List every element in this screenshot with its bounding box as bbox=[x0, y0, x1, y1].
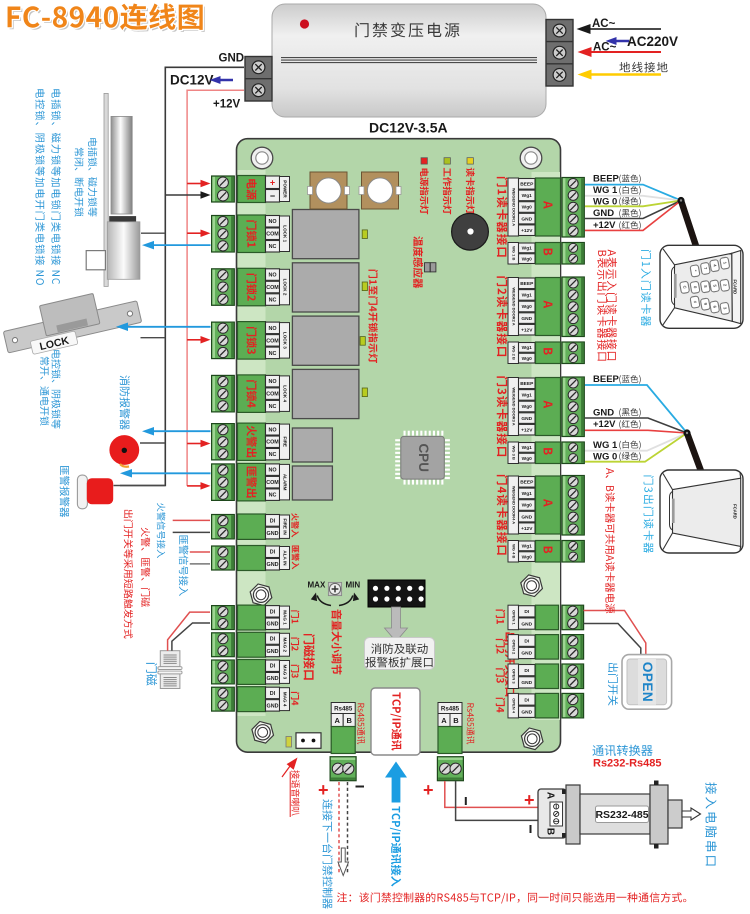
svg-text:AC220V: AC220V bbox=[627, 34, 678, 49]
svg-text:Wg1: Wg1 bbox=[522, 393, 532, 399]
svg-text:B: B bbox=[545, 828, 556, 835]
svg-text:Rs485: Rs485 bbox=[441, 705, 460, 712]
svg-text:LOCK 2: LOCK 2 bbox=[282, 279, 287, 296]
svg-text:Wg0: Wg0 bbox=[522, 503, 532, 509]
svg-text:+12V: +12V bbox=[213, 99, 241, 111]
svg-text:LOCK 3: LOCK 3 bbox=[282, 332, 287, 349]
svg-text:NO: NO bbox=[268, 326, 276, 332]
svg-text:AC~: AC~ bbox=[592, 18, 616, 30]
svg-text:Wg1: Wg1 bbox=[522, 345, 532, 351]
svg-text:DC12V-3.5A: DC12V-3.5A bbox=[369, 120, 448, 136]
svg-text:FCARD: FCARD bbox=[733, 279, 738, 294]
svg-text:ALA IN: ALA IN bbox=[282, 550, 287, 566]
svg-text:FIRE IN: FIRE IN bbox=[282, 519, 287, 536]
svg-text:MAG 1: MAG 1 bbox=[282, 610, 287, 625]
svg-text:WEIGEND DOOR3 A: WEIGEND DOOR3 A bbox=[511, 387, 516, 425]
svg-text:POWER: POWER bbox=[282, 180, 287, 198]
svg-text:NC: NC bbox=[269, 244, 277, 250]
svg-text:Wg1: Wg1 bbox=[522, 491, 532, 497]
svg-text:Rs485: Rs485 bbox=[334, 705, 353, 712]
svg-text:Wg1: Wg1 bbox=[522, 193, 532, 199]
svg-text:GND: GND bbox=[267, 649, 279, 655]
svg-text:LOCK 1: LOCK 1 bbox=[282, 225, 287, 242]
svg-text:WG 1: WG 1 bbox=[593, 440, 618, 451]
svg-text:GND: GND bbox=[521, 514, 532, 520]
svg-text:+12V: +12V bbox=[521, 526, 533, 532]
svg-text:Wg0: Wg0 bbox=[522, 456, 532, 462]
svg-text:GND: GND bbox=[267, 676, 279, 682]
svg-text:GND: GND bbox=[521, 316, 532, 322]
svg-text:DI: DI bbox=[270, 518, 276, 524]
svg-text:NC: NC bbox=[269, 452, 277, 458]
svg-text:NC: NC bbox=[269, 351, 277, 357]
svg-text:WEIGEND DOOR2 A: WEIGEND DOOR2 A bbox=[511, 287, 516, 325]
svg-text:WG 2 B: WG 2 B bbox=[511, 346, 516, 360]
svg-text:RS232-485: RS232-485 bbox=[595, 809, 648, 821]
svg-text:+12V: +12V bbox=[521, 228, 533, 234]
svg-text:Wg0: Wg0 bbox=[522, 404, 532, 410]
svg-text:−: − bbox=[270, 191, 275, 201]
svg-text:DC12V: DC12V bbox=[170, 73, 214, 88]
svg-text:Wg1: Wg1 bbox=[522, 293, 532, 299]
svg-text:GND: GND bbox=[521, 216, 532, 222]
svg-text:NO: NO bbox=[268, 427, 276, 433]
svg-text:WG 1 B: WG 1 B bbox=[511, 246, 516, 260]
svg-text:DI: DI bbox=[524, 668, 529, 674]
svg-text:WEIGEND DOOR4 A: WEIGEND DOOR4 A bbox=[511, 486, 516, 524]
svg-text:NC: NC bbox=[269, 297, 277, 303]
svg-text:GND: GND bbox=[593, 208, 614, 219]
svg-text:DI: DI bbox=[270, 691, 276, 697]
svg-text:+12V: +12V bbox=[593, 419, 616, 430]
svg-text:MAX: MAX bbox=[308, 581, 326, 590]
svg-text:WG 1: WG 1 bbox=[593, 185, 618, 196]
svg-text:DI: DI bbox=[270, 550, 276, 556]
svg-text:GND: GND bbox=[593, 407, 614, 418]
svg-text:COM: COM bbox=[266, 392, 279, 398]
svg-text:DI: DI bbox=[524, 609, 529, 615]
svg-text:NO: NO bbox=[268, 379, 276, 385]
svg-text:Wg0: Wg0 bbox=[522, 304, 532, 310]
svg-text:BEEP: BEEP bbox=[593, 174, 620, 185]
svg-text:FCARD: FCARD bbox=[733, 504, 738, 519]
svg-text:OPEN: OPEN bbox=[640, 662, 655, 702]
svg-text:OPEN 1: OPEN 1 bbox=[511, 610, 516, 625]
svg-text:B: B bbox=[453, 716, 459, 725]
svg-text:FIRE: FIRE bbox=[282, 437, 287, 447]
svg-text:WEIGEND DOOR1 A: WEIGEND DOOR1 A bbox=[511, 188, 516, 226]
svg-text:CPU: CPU bbox=[416, 443, 431, 472]
svg-text:BEEP: BEEP bbox=[520, 281, 534, 287]
svg-text:COM: COM bbox=[266, 440, 279, 446]
svg-text:GND: GND bbox=[521, 621, 532, 627]
svg-text:MAG 2: MAG 2 bbox=[282, 637, 287, 652]
svg-text:DI: DI bbox=[524, 638, 529, 644]
svg-text:Rs232-Rs485: Rs232-Rs485 bbox=[593, 758, 662, 770]
svg-text:Wg0: Wg0 bbox=[522, 256, 532, 262]
svg-text:COM: COM bbox=[266, 232, 279, 238]
svg-text:ALARM: ALARM bbox=[282, 474, 287, 491]
svg-text:A: A bbox=[334, 716, 340, 725]
svg-text:Wg0: Wg0 bbox=[522, 554, 532, 560]
svg-text:WG 4 B: WG 4 B bbox=[511, 544, 516, 558]
svg-text:BEEP: BEEP bbox=[520, 480, 534, 486]
svg-text:Wg0: Wg0 bbox=[522, 356, 532, 362]
svg-text:GND: GND bbox=[521, 710, 532, 716]
svg-text:NO: NO bbox=[268, 468, 276, 474]
svg-text:BEEP: BEEP bbox=[520, 381, 534, 387]
svg-text:B: B bbox=[346, 716, 352, 725]
svg-text:OPEN 4: OPEN 4 bbox=[511, 698, 516, 713]
svg-text:GND: GND bbox=[521, 651, 532, 657]
svg-text:GND: GND bbox=[521, 416, 532, 422]
svg-text:+: + bbox=[524, 790, 535, 810]
svg-text:WG 0: WG 0 bbox=[593, 451, 617, 462]
svg-text:BEEP: BEEP bbox=[520, 182, 534, 188]
svg-text:+: + bbox=[318, 780, 329, 800]
svg-text:Wg0: Wg0 bbox=[522, 205, 532, 211]
svg-text:NC: NC bbox=[269, 404, 277, 410]
svg-text:Wg1: Wg1 bbox=[522, 445, 532, 451]
svg-text:OPEN 3: OPEN 3 bbox=[511, 669, 516, 684]
svg-text:GND: GND bbox=[267, 703, 279, 709]
svg-text:GND: GND bbox=[267, 562, 279, 568]
svg-text:MAG 4: MAG 4 bbox=[282, 692, 287, 707]
svg-text:DI: DI bbox=[270, 664, 276, 670]
svg-text:NO: NO bbox=[268, 219, 276, 225]
svg-text:NC: NC bbox=[269, 493, 277, 499]
svg-text:MAG 3: MAG 3 bbox=[282, 665, 287, 680]
svg-text:DI: DI bbox=[524, 697, 529, 703]
svg-text:+: + bbox=[423, 780, 434, 800]
svg-text:DI: DI bbox=[270, 609, 276, 615]
svg-text:+12V: +12V bbox=[521, 327, 533, 333]
svg-text:GND: GND bbox=[219, 53, 245, 65]
svg-text:GND: GND bbox=[267, 622, 279, 628]
svg-text:Wg1: Wg1 bbox=[522, 544, 532, 550]
svg-text:A: A bbox=[441, 716, 447, 725]
svg-text:OPEN 2: OPEN 2 bbox=[511, 640, 516, 655]
svg-text:LOCK 4: LOCK 4 bbox=[282, 385, 287, 402]
svg-text:GND: GND bbox=[521, 680, 532, 686]
svg-text:COM: COM bbox=[266, 338, 279, 344]
svg-text:MIN: MIN bbox=[346, 581, 361, 590]
svg-text:NO: NO bbox=[268, 272, 276, 278]
svg-text:Wg1: Wg1 bbox=[522, 246, 532, 252]
svg-text:+12V: +12V bbox=[521, 427, 533, 433]
svg-text:GND: GND bbox=[267, 531, 279, 537]
svg-text:+12V: +12V bbox=[593, 220, 616, 231]
svg-text:COM: COM bbox=[266, 285, 279, 291]
svg-text:COM: COM bbox=[266, 480, 279, 486]
svg-text:A: A bbox=[545, 792, 556, 799]
svg-text:DI: DI bbox=[270, 636, 276, 642]
svg-text:WG 3 B: WG 3 B bbox=[511, 446, 516, 460]
svg-text:BEEP: BEEP bbox=[593, 374, 620, 385]
svg-text:+: + bbox=[270, 177, 275, 187]
